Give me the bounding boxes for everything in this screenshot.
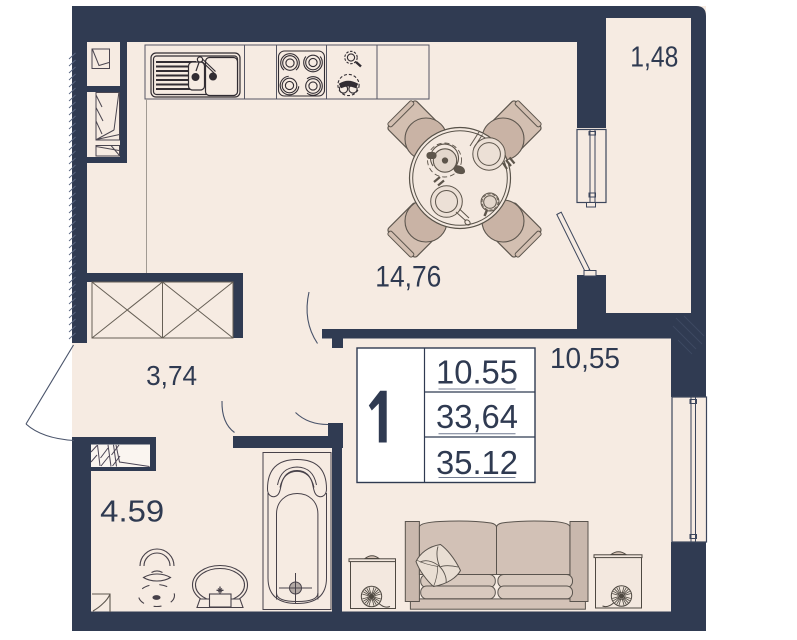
svg-text:1,48: 1,48: [630, 42, 678, 74]
svg-text:3,74: 3,74: [146, 360, 197, 391]
svg-text:14,76: 14,76: [375, 261, 441, 294]
svg-text:4.59: 4.59: [100, 494, 164, 529]
svg-text:33,64: 33,64: [436, 398, 518, 435]
svg-text:10,55: 10,55: [550, 343, 620, 375]
svg-text:10.55: 10.55: [436, 353, 518, 390]
svg-text:35.12: 35.12: [436, 444, 518, 481]
